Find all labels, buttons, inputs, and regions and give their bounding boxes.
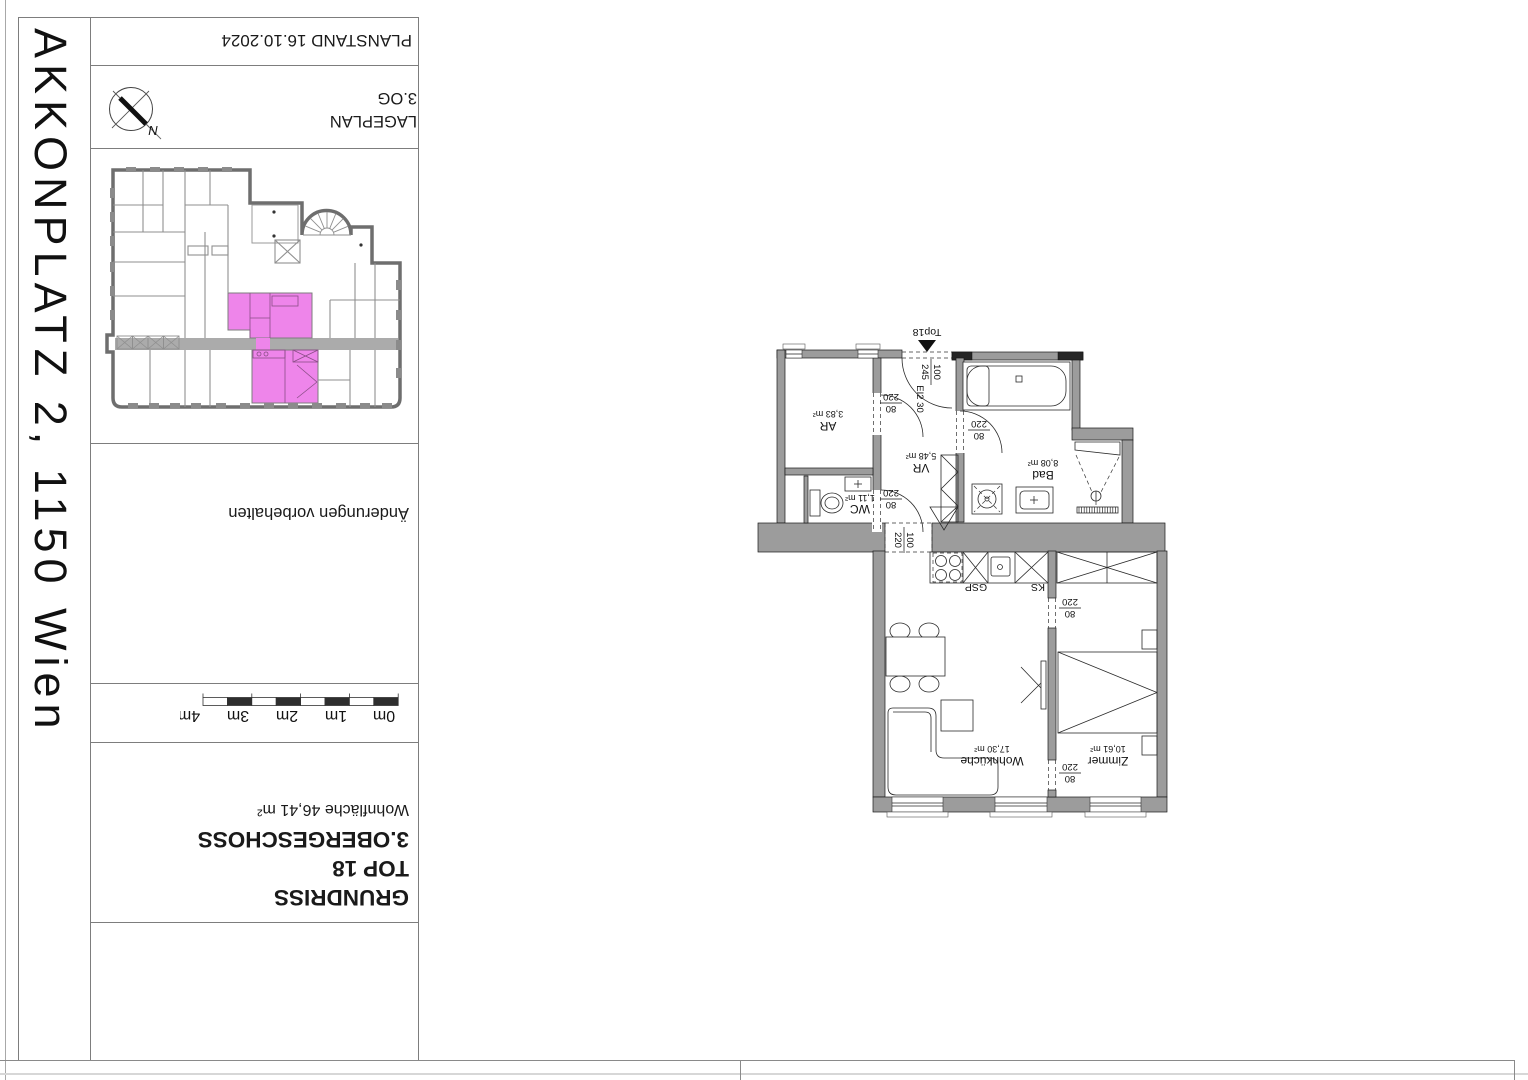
project-title: AKKONPLATZ 2, 1150 Wien: [24, 28, 76, 735]
svg-text:5,48 m²: 5,48 m²: [906, 451, 937, 461]
scale-segment: [349, 698, 373, 706]
site-window-tick: [240, 403, 250, 408]
bad-sink: [1016, 487, 1053, 513]
door-dim-bad: 80 220: [968, 418, 990, 441]
site-window-tick: [110, 212, 115, 222]
frame-div-bottom: [740, 1061, 741, 1080]
titleblock-left: [18, 17, 19, 1060]
page-edge-bottom: [0, 1073, 1528, 1075]
site-window-tick: [396, 368, 401, 378]
highlight-unit-passage: [256, 338, 270, 350]
site-window-tick: [360, 403, 370, 408]
site-window-tick: [174, 167, 184, 172]
site-window-tick: [396, 280, 401, 290]
window: [1090, 797, 1141, 812]
room-label-bad: Bad 8,08 m²: [1028, 458, 1059, 482]
scale-label-0m: 0m: [373, 707, 395, 724]
site-window-tick: [288, 403, 298, 408]
room-label-zimmer: Zimmer 10,61 m²: [1088, 744, 1129, 768]
row-line-5: [90, 742, 418, 743]
svg-text:1,11 m²: 1,11 m²: [845, 493, 875, 503]
site-window-tick: [336, 403, 346, 408]
row-line-4: [90, 683, 418, 684]
lageplan-title: LAGEPLAN: [297, 109, 417, 132]
wc-toilet: [810, 490, 843, 516]
shower: [1075, 442, 1120, 513]
scale-bar: 4m 3m 2m 1m 0m: [180, 688, 410, 736]
wc-sink: [845, 477, 871, 491]
site-window-tick: [222, 167, 232, 172]
row-line-2: [90, 148, 418, 149]
room-label-ar: AR 3,83 m²: [813, 409, 844, 433]
sliding-door: [1021, 661, 1046, 709]
row-line-3: [90, 443, 418, 444]
site-window-tick: [170, 403, 180, 408]
bathtub: [963, 362, 1070, 410]
site-window-tick: [110, 286, 115, 296]
svg-text:220: 220: [892, 532, 903, 548]
site-window-tick: [396, 310, 401, 320]
site-window-tick: [150, 167, 160, 172]
svg-text:220: 220: [883, 391, 899, 402]
svg-text:100: 100: [931, 364, 942, 380]
svg-text:AR: AR: [819, 419, 836, 433]
scale-segment: [227, 698, 251, 706]
window: [995, 797, 1047, 812]
svg-text:10,61 m²: 10,61 m²: [1090, 744, 1126, 754]
dining-set: [886, 623, 945, 692]
titleblock-div1: [90, 17, 91, 1060]
site-window-tick: [110, 262, 115, 272]
site-window-tick: [149, 403, 159, 408]
site-window-tick: [216, 403, 226, 408]
scale-segment: [325, 698, 349, 706]
drawing-type: GRUNDRISS: [189, 883, 409, 912]
coffee-table: [941, 700, 973, 731]
scale-segment: [252, 698, 276, 706]
svg-text:100: 100: [904, 532, 915, 548]
kitchen-counter: [930, 552, 1048, 583]
svg-text:80: 80: [974, 430, 985, 441]
door-dim-zimmer-top: 80 220: [1059, 596, 1081, 619]
window: [892, 797, 943, 812]
label-gsp: GSP: [965, 581, 987, 593]
lageplan-label: LAGEPLAN 3.OG: [297, 86, 417, 132]
scale-label-1m: 1m: [325, 707, 347, 724]
door-dim-wc: 80 220: [880, 487, 902, 510]
scale-label-4m: 4m: [180, 707, 200, 724]
svg-text:80: 80: [1065, 773, 1076, 784]
site-window-tick: [110, 188, 115, 198]
entrance-door-class: EI2 30: [914, 385, 925, 412]
svg-text:Zimmer: Zimmer: [1088, 754, 1129, 768]
svg-text:8,08 m²: 8,08 m²: [1028, 458, 1059, 468]
floor-plan: Top18 80 220 80 220 80 220 80 220 80 220: [750, 320, 1190, 825]
scale-label-3m: 3m: [227, 707, 249, 724]
north-letter: N: [148, 123, 158, 138]
frame-bottom: [0, 1060, 1514, 1061]
svg-text:17,30 m²: 17,30 m²: [974, 744, 1010, 754]
planstand-label: PLANSTAND 16.10.2024: [212, 30, 412, 50]
page-edge-left: [5, 0, 6, 1080]
svg-text:80: 80: [886, 499, 897, 510]
floor-label: 3.OBERGESCHOSS: [189, 825, 409, 854]
living-area-label: Wohnfläche 46,41 m²: [189, 800, 409, 818]
scale-segment: [276, 698, 300, 706]
scale-label-2m: 2m: [276, 707, 298, 724]
titleblock-top: [18, 17, 418, 18]
label-ks: KS: [1031, 581, 1045, 593]
site-window-tick: [198, 167, 208, 172]
room-label-wc: WC 1,11 m²: [845, 493, 875, 516]
note-text: Änderungen vorbehalten: [209, 503, 409, 522]
svg-text:220: 220: [1062, 596, 1078, 607]
row-line-6: [90, 922, 418, 923]
svg-text:220: 220: [1062, 761, 1078, 772]
door-dim-zimmer-bottom: 80 220: [1059, 761, 1081, 784]
svg-text:3,83 m²: 3,83 m²: [813, 409, 844, 419]
scale-segment: [301, 698, 325, 706]
terrace: [252, 205, 298, 243]
frame-right-bottom: [1514, 1060, 1515, 1080]
room-label-vr: VR 5,48 m²: [906, 451, 937, 475]
entrance-label: Top18: [913, 326, 942, 338]
site-window-tick: [110, 236, 115, 246]
drawing-title-block: GRUNDRISS TOP 18 3.OBERGESCHOSS Wohnfläc…: [189, 800, 409, 912]
bed: [1058, 630, 1157, 755]
passage-dim: 100 220: [892, 527, 915, 553]
row-line-1: [90, 65, 418, 66]
svg-text:Bad: Bad: [1032, 468, 1053, 482]
site-plan: [100, 150, 420, 440]
site-window-tick: [128, 403, 138, 408]
svg-text:VR: VR: [912, 461, 929, 475]
site-window-tick: [264, 403, 274, 408]
svg-text:220: 220: [883, 487, 899, 498]
door-dim-ar: 80 220: [880, 391, 902, 414]
scale-segment: [203, 698, 227, 706]
entrance-marker: Top18: [913, 326, 942, 352]
svg-text:80: 80: [1065, 608, 1076, 619]
site-window-tick: [191, 403, 201, 408]
svg-text:Wohnküche: Wohnküche: [960, 754, 1023, 768]
svg-text:WC: WC: [850, 502, 870, 516]
svg-text:220: 220: [971, 418, 987, 429]
site-window-tick: [396, 340, 401, 350]
wardrobe: [1057, 552, 1157, 583]
entrance-dim: 100 245: [919, 359, 942, 385]
svg-text:245: 245: [919, 364, 930, 380]
room-label-wohnkueche: Wohnküche 17,30 m²: [960, 744, 1023, 768]
vr-closet: [930, 455, 958, 530]
svg-text:80: 80: [886, 403, 897, 414]
scale-segment: [374, 698, 398, 706]
plan-sheet: AKKONPLATZ 2, 1150 Wien PLANSTAND 16.10.…: [0, 0, 1528, 1080]
site-window-tick: [382, 403, 392, 408]
compass-icon: N: [103, 80, 173, 146]
washing-machine: [972, 484, 1002, 514]
site-window-tick: [126, 167, 136, 172]
site-window-tick: [110, 310, 115, 320]
unit-label: TOP 18: [189, 854, 409, 883]
lageplan-floor: 3.OG: [297, 86, 417, 109]
site-window-tick: [312, 403, 322, 408]
